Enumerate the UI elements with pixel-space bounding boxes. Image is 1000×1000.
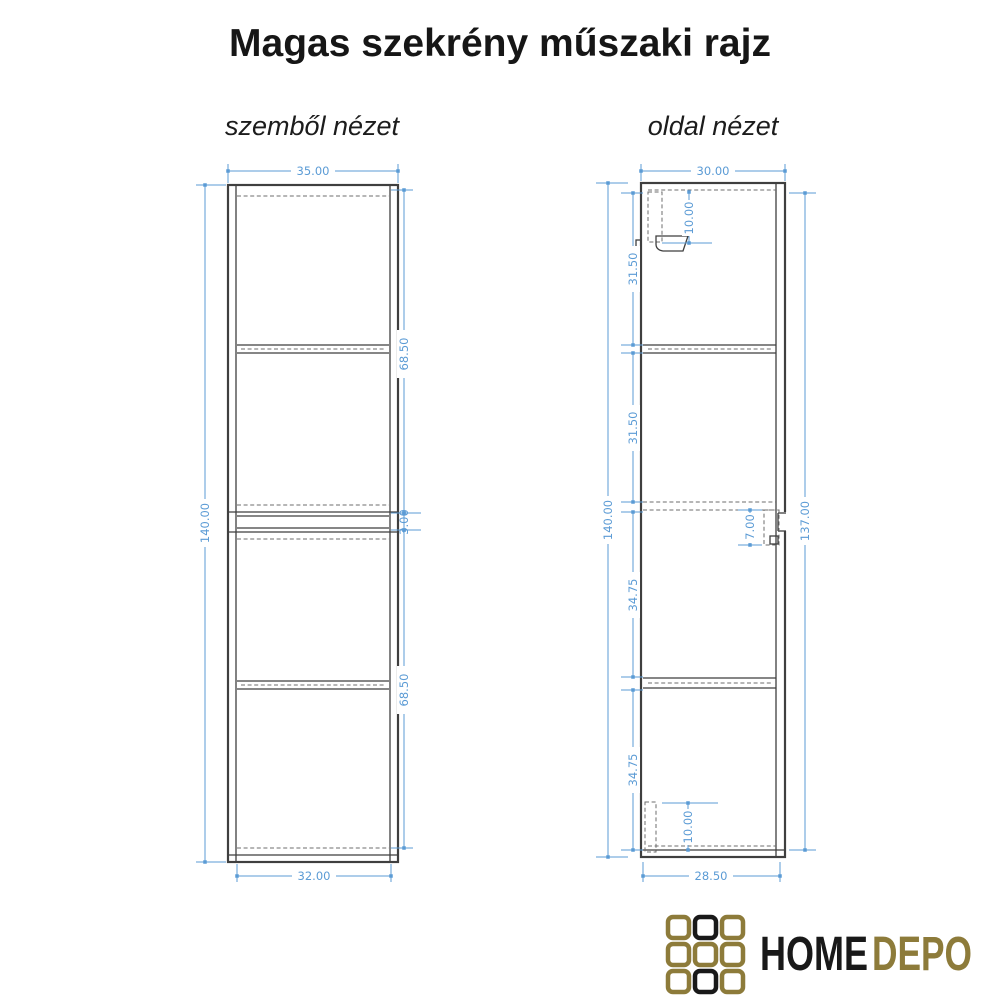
side-cabinet-body [641,183,785,857]
page-title: Magas szekrény műszaki rajz [229,22,771,65]
dim-door-lower: 68.50 [397,674,411,707]
dim-width-bottom: 32.00 [298,869,331,883]
dim-door-upper: 68.50 [397,338,411,371]
front-view: 35.00 140.00 68.50 3.00 68.50 [196,164,421,883]
logo-square [695,944,716,965]
dim-depth-top: 30.00 [697,164,730,178]
top-bracket-hidden-outline [648,192,662,242]
side-view-label: oldal nézet [648,111,780,141]
technical-drawing-page: Magas szekrény műszaki rajz szemből néze… [0,0,1000,1000]
dim-detail-middle: 7.00 [743,514,757,540]
logo-square [695,971,716,992]
logo-word-home: HOME [760,928,868,981]
dim-section-2: 31.50 [626,412,640,445]
dim-bracket-top: 10.00 [682,202,696,235]
dim-width-top: 35.00 [297,164,330,178]
logo-square [722,917,743,938]
dim-gap-middle: 3.00 [397,509,411,535]
homedepo-logo: HOME DEPO [668,917,972,992]
drawing-canvas: Magas szekrény műszaki rajz szemből néze… [0,0,1000,1000]
middle-detail-hidden-outline [764,510,779,545]
logo-square [695,917,716,938]
middle-detail-block [770,536,778,544]
front-cabinet-outline [228,185,398,862]
logo-square [668,944,689,965]
side-cabinet-outline [636,183,790,857]
logo-square [722,971,743,992]
logo-word-depo: DEPO [872,928,972,981]
bottom-bracket-hidden-outline [645,802,656,852]
dim-depth-bottom: 28.50 [695,869,728,883]
notch-mask [783,512,790,531]
front-dimensions: 35.00 140.00 68.50 3.00 68.50 [196,164,421,883]
dim-section-4: 34.75 [626,754,640,787]
logo-square [668,971,689,992]
logo-square [722,944,743,965]
logo-square [668,917,689,938]
logo-grid-icon [668,917,743,992]
dim-section-3: 34.75 [626,579,640,612]
dim-side-height-left: 140.00 [601,500,615,540]
front-view-label: szemből nézet [225,111,401,141]
side-view: 30.00 140.00 31.50 31.50 34 [596,164,816,883]
front-cabinet-body [228,185,398,862]
dim-bracket-bottom: 10.00 [681,811,695,844]
dim-section-1: 31.50 [626,253,640,286]
dim-height-left: 140.00 [198,503,212,543]
dim-height-right: 137.00 [798,501,812,541]
